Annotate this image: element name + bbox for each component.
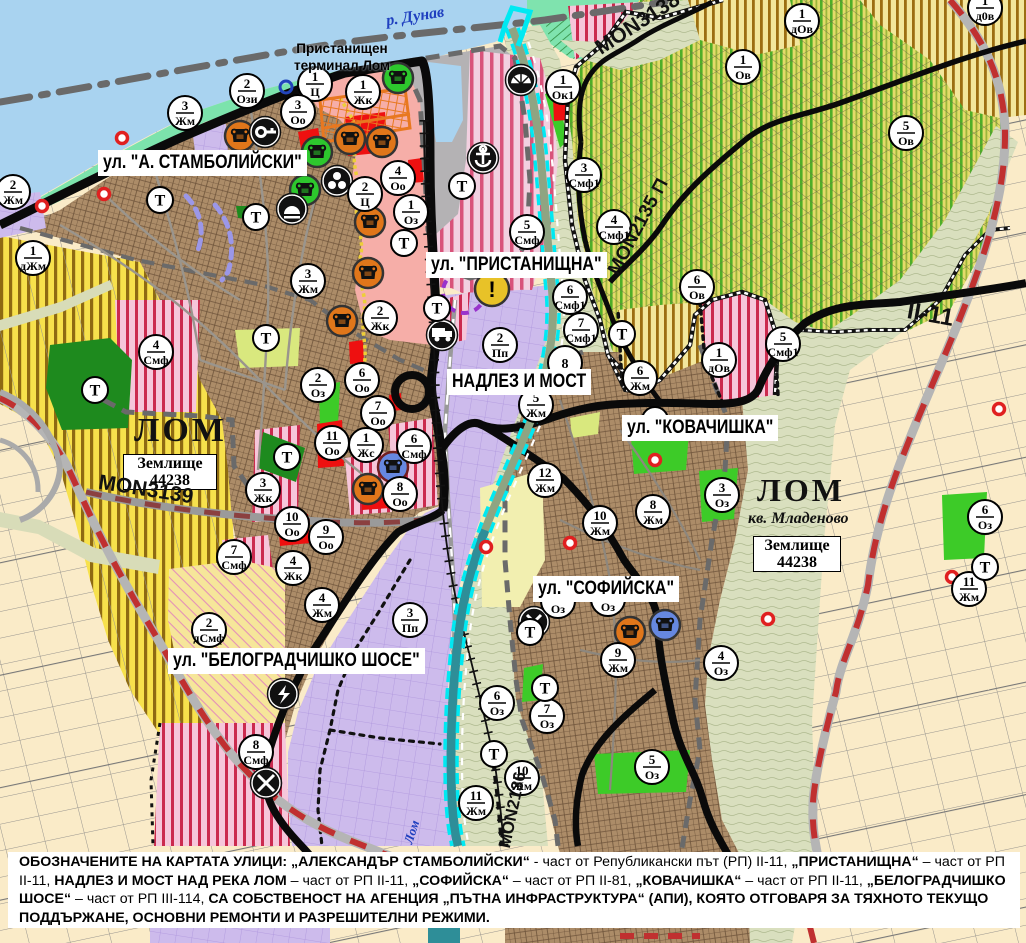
svg-text:5: 5 bbox=[780, 329, 787, 344]
svg-text:4: 4 bbox=[319, 590, 326, 605]
svg-text:10: 10 bbox=[286, 509, 299, 524]
svg-text:Ц: Ц bbox=[360, 195, 370, 209]
svg-text:3: 3 bbox=[407, 605, 414, 620]
svg-text:Жс: Жс bbox=[357, 446, 375, 460]
svg-text:1: 1 bbox=[716, 345, 723, 360]
svg-text:4: 4 bbox=[153, 337, 160, 352]
svg-text:Жм: Жм bbox=[526, 406, 546, 420]
svg-text:3: 3 bbox=[581, 160, 588, 175]
svg-text:Смф: Смф bbox=[243, 753, 268, 767]
svg-text:6: 6 bbox=[637, 363, 644, 378]
svg-text:Смф: Смф bbox=[514, 233, 539, 247]
svg-text:Жк: Жк bbox=[254, 491, 273, 505]
svg-text:!: ! bbox=[488, 277, 495, 302]
svg-text:2: 2 bbox=[315, 370, 322, 385]
svg-text:4: 4 bbox=[718, 648, 725, 663]
svg-text:Т: Т bbox=[489, 747, 500, 764]
svg-text:Смф1: Смф1 bbox=[554, 298, 585, 312]
svg-text:Оз: Оз bbox=[490, 704, 504, 718]
svg-text:Ок1: Ок1 bbox=[552, 88, 574, 102]
svg-text:Жм: Жм bbox=[608, 661, 628, 675]
svg-text:1: 1 bbox=[360, 77, 367, 92]
svg-text:10: 10 bbox=[594, 508, 607, 523]
svg-text:Жм: Жм bbox=[630, 379, 650, 393]
svg-text:11: 11 bbox=[470, 788, 482, 803]
svg-text:1: 1 bbox=[740, 52, 747, 67]
svg-text:Ов: Ов bbox=[689, 288, 705, 302]
svg-text:Жк: Жк bbox=[354, 93, 373, 107]
svg-text:Оо: Оо bbox=[392, 495, 407, 509]
svg-text:7: 7 bbox=[231, 542, 238, 557]
svg-text:Оз: Оз bbox=[601, 600, 615, 614]
svg-text:Оо: Оо bbox=[324, 444, 339, 458]
svg-text:Т: Т bbox=[282, 450, 293, 467]
svg-text:Жм: Жм bbox=[466, 804, 486, 818]
svg-text:Т: Т bbox=[90, 383, 101, 400]
svg-text:Смф1: Смф1 bbox=[565, 331, 596, 345]
svg-text:Жм: Жм bbox=[959, 590, 979, 604]
svg-text:1: 1 bbox=[982, 0, 989, 8]
svg-text:3: 3 bbox=[305, 266, 312, 281]
svg-text:Жм: Жм bbox=[643, 513, 663, 527]
svg-text:Оо: Оо bbox=[284, 525, 299, 539]
svg-text:дСмф: дСмф bbox=[193, 631, 224, 645]
svg-text:3: 3 bbox=[295, 97, 302, 112]
svg-text:7: 7 bbox=[375, 398, 382, 413]
svg-text:1: 1 bbox=[799, 6, 806, 21]
svg-text:9: 9 bbox=[615, 645, 622, 660]
svg-text:Т: Т bbox=[155, 193, 166, 210]
svg-text:Жм: Жм bbox=[535, 481, 555, 495]
svg-text:1: 1 bbox=[30, 243, 37, 258]
svg-text:1: 1 bbox=[408, 197, 415, 212]
svg-text:8: 8 bbox=[650, 497, 657, 512]
svg-text:5: 5 bbox=[903, 118, 910, 133]
svg-text:1: 1 bbox=[363, 430, 370, 445]
svg-text:Оз: Оз bbox=[715, 496, 729, 510]
svg-text:дЖм: дЖм bbox=[20, 259, 46, 273]
svg-text:Жм: Жм bbox=[3, 193, 23, 207]
svg-text:Т: Т bbox=[399, 236, 410, 253]
svg-text:3: 3 bbox=[719, 480, 726, 495]
svg-text:6: 6 bbox=[567, 282, 574, 297]
svg-text:2: 2 bbox=[206, 615, 213, 630]
svg-text:Жм: Жм bbox=[312, 606, 332, 620]
svg-text:6: 6 bbox=[694, 272, 701, 287]
svg-text:8: 8 bbox=[253, 737, 260, 752]
svg-text:6: 6 bbox=[982, 502, 989, 517]
svg-text:6: 6 bbox=[494, 688, 501, 703]
svg-text:1: 1 bbox=[560, 72, 567, 87]
svg-text:Т: Т bbox=[525, 625, 536, 642]
svg-text:Оо: Оо bbox=[390, 179, 405, 193]
svg-text:11: 11 bbox=[963, 574, 975, 589]
svg-text:Оз: Оз bbox=[311, 386, 325, 400]
svg-text:Оз: Оз bbox=[714, 664, 728, 678]
svg-text:Оз: Оз bbox=[404, 213, 418, 227]
svg-text:Ц: Ц bbox=[310, 85, 320, 99]
svg-text:Оо: Оо bbox=[290, 113, 305, 127]
svg-text:9: 9 bbox=[323, 522, 330, 537]
svg-text:11: 11 bbox=[326, 428, 338, 443]
svg-text:Ози: Ози bbox=[236, 92, 257, 106]
svg-text:Смф: Смф bbox=[401, 447, 426, 461]
svg-text:Т: Т bbox=[432, 301, 443, 318]
svg-text:Оз: Оз bbox=[540, 717, 554, 731]
svg-text:6: 6 bbox=[411, 431, 418, 446]
svg-text:2: 2 bbox=[497, 330, 504, 345]
svg-text:Жк: Жк bbox=[284, 569, 303, 583]
svg-text:Оз: Оз bbox=[978, 518, 992, 532]
svg-text:Жм: Жм bbox=[298, 282, 318, 296]
svg-text:Смф: Смф bbox=[143, 353, 168, 367]
svg-text:6: 6 bbox=[359, 365, 366, 380]
svg-text:3: 3 bbox=[260, 475, 267, 490]
svg-text:5: 5 bbox=[524, 217, 531, 232]
svg-text:4: 4 bbox=[290, 553, 297, 568]
svg-text:д0в: д0в bbox=[976, 9, 995, 23]
svg-text:дОв: дОв bbox=[708, 361, 730, 375]
svg-text:Т: Т bbox=[980, 560, 991, 577]
svg-text:Оз: Оз bbox=[551, 602, 565, 616]
svg-text:Т: Т bbox=[457, 179, 468, 196]
svg-text:Жк: Жк bbox=[371, 319, 390, 333]
svg-text:Т: Т bbox=[617, 327, 628, 344]
svg-text:Оз: Оз bbox=[645, 768, 659, 782]
svg-text:12: 12 bbox=[539, 465, 552, 480]
svg-text:Смф1: Смф1 bbox=[568, 176, 599, 190]
svg-text:7: 7 bbox=[578, 315, 585, 330]
svg-text:8: 8 bbox=[397, 479, 404, 494]
svg-text:Ов: Ов bbox=[898, 134, 914, 148]
svg-text:7: 7 bbox=[544, 701, 551, 716]
svg-text:Пп: Пп bbox=[402, 621, 418, 635]
svg-text:2: 2 bbox=[10, 177, 17, 192]
svg-text:2: 2 bbox=[377, 303, 384, 318]
svg-text:дОв: дОв bbox=[791, 22, 813, 36]
svg-text:Жм: Жм bbox=[590, 524, 610, 538]
svg-text:4: 4 bbox=[395, 163, 402, 178]
svg-text:Жм: Жм bbox=[175, 114, 195, 128]
svg-text:2: 2 bbox=[244, 76, 251, 91]
svg-text:Т: Т bbox=[540, 681, 551, 698]
svg-text:Оо: Оо bbox=[370, 414, 385, 428]
svg-text:Оо: Оо bbox=[354, 381, 369, 395]
svg-text:4: 4 bbox=[611, 212, 618, 227]
svg-text:Ов: Ов bbox=[735, 68, 751, 82]
svg-text:5: 5 bbox=[649, 752, 656, 767]
svg-text:Оо: Оо bbox=[318, 538, 333, 552]
svg-text:2: 2 bbox=[362, 179, 369, 194]
svg-text:Т: Т bbox=[261, 331, 272, 348]
svg-text:Пп: Пп bbox=[492, 346, 508, 360]
svg-text:Смф1: Смф1 bbox=[767, 345, 798, 359]
svg-text:Смф: Смф bbox=[221, 558, 246, 572]
svg-text:Т: Т bbox=[251, 210, 262, 227]
svg-text:3: 3 bbox=[182, 98, 189, 113]
